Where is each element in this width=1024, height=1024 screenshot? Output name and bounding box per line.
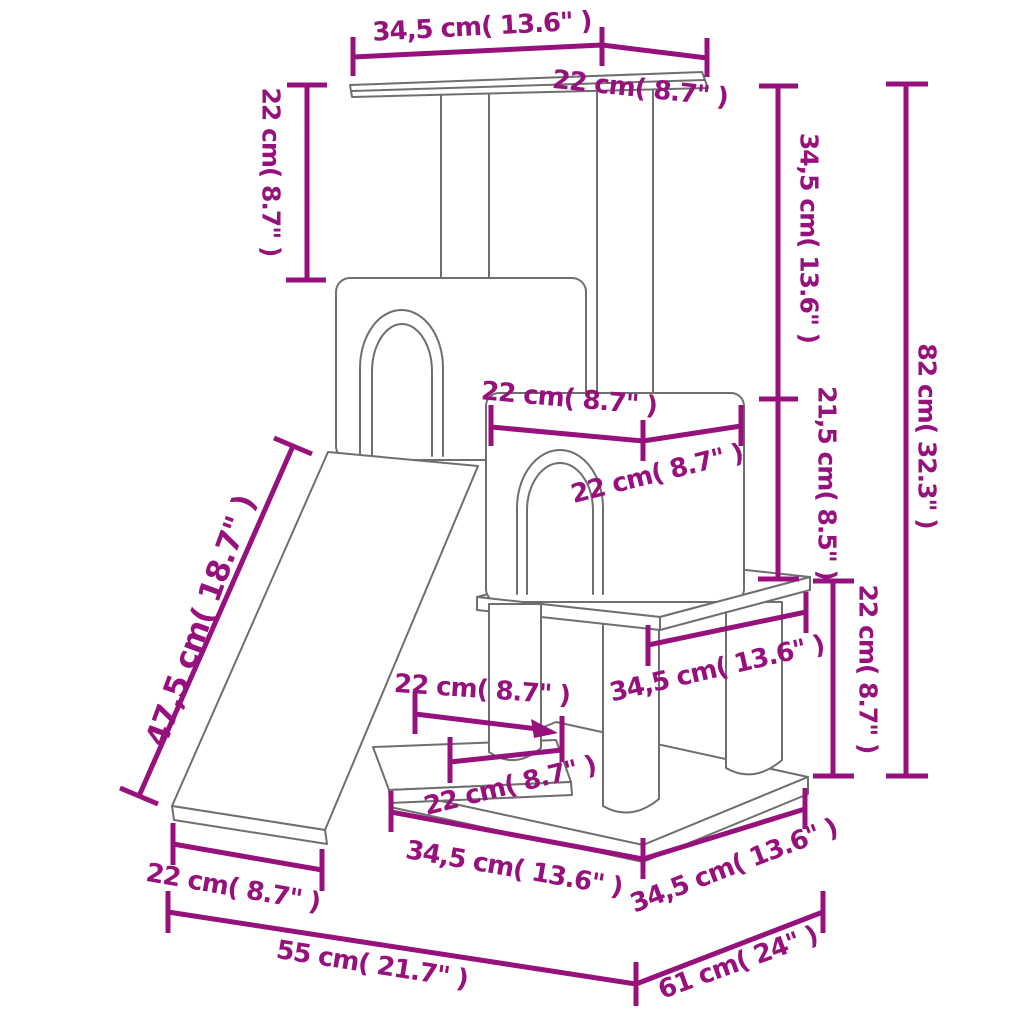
dim-label-condo-height: 21,5 cm( 8.5" ) [813,386,842,580]
dim-label-top-pole-height: 22 cm( 8.7" ) [257,88,286,257]
dim-label-post-inset: 22 cm( 8.7" ) [393,669,571,711]
dim-floor-width: 55 cm( 21.7" ) [168,891,636,1006]
top-pole-right [597,90,653,397]
dim-condo-height: 21,5 cm( 8.5" ) [758,386,842,580]
dim-total-height: 82 cm( 32.3" ) [886,84,942,776]
dim-label-lower-section-height: 22 cm( 8.7" ) [854,585,883,754]
scratch-post-left [603,622,659,813]
dim-label-total-height: 82 cm( 32.3" ) [913,343,942,528]
dim-label-upper-section-height: 34,5 cm( 13.6" ) [795,133,824,343]
diagram-page: 34,5 cm( 13.6" ) 22 cm( 8.7" ) 22 cm( 8.… [0,0,1024,1024]
dim-lower-section-height: 22 cm( 8.7" ) [813,581,883,776]
dim-label-floor-depth: 61 cm( 24" ) [654,920,822,1005]
dim-upper-section-height: 34,5 cm( 13.6" ) [759,86,824,399]
cat-tree-dimension-diagram: 34,5 cm( 13.6" ) 22 cm( 8.7" ) 22 cm( 8.… [0,0,1024,1024]
top-pole-left [441,94,489,279]
dim-top-pole-height: 22 cm( 8.7" ) [257,85,328,280]
dim-label-top-platform-width: 34,5 cm( 13.6" ) [372,6,593,47]
